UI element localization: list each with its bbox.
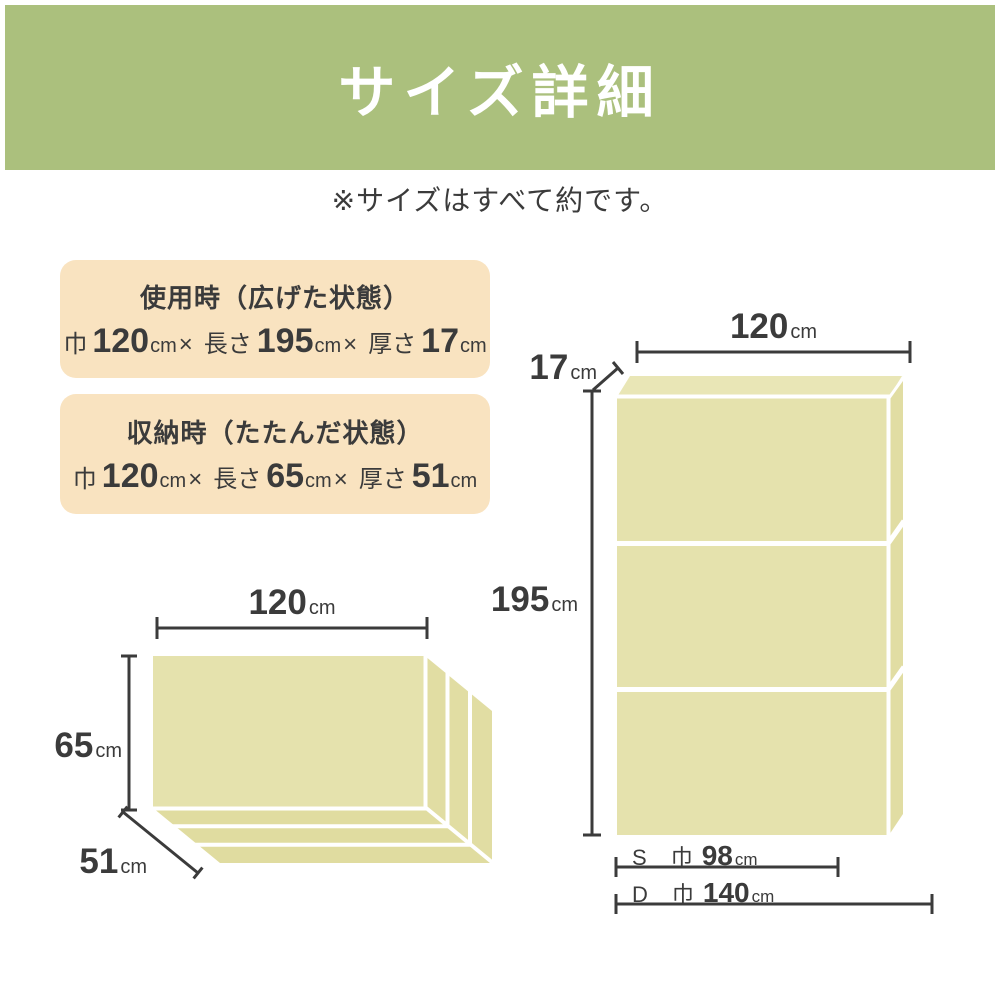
double-size-row: D 巾 140cm (632, 877, 774, 909)
size-width-label: 巾 (671, 840, 693, 872)
folded-height-dim-label: 65cm (30, 726, 122, 766)
folded-depth-dim-label: 51cm (55, 842, 147, 882)
unfolded-top-face (617, 376, 902, 397)
size-code: S (632, 845, 647, 871)
unfolded-thickness-dim-label: 17cm (460, 348, 597, 388)
unfolded-mattress-diagram (583, 341, 932, 914)
unfolded-front-face (617, 397, 888, 835)
dim-value: 17 (529, 348, 568, 388)
single-size-row: S 巾 98cm (632, 840, 758, 872)
dim-value: 120 (248, 583, 306, 623)
dim-unit: cm (790, 321, 817, 344)
folded-front-face (153, 656, 425, 808)
unfolded-length-dim-label: 195cm (460, 580, 578, 620)
dim-value: 120 (730, 307, 788, 347)
dim-unit: cm (309, 597, 336, 620)
size-width-unit: cm (735, 850, 758, 870)
dim-unit: cm (551, 594, 578, 617)
dim-value: 195 (491, 580, 549, 620)
dim-unit: cm (570, 362, 597, 385)
unfolded-width-dim-label: 120cm (637, 307, 910, 347)
size-width-unit: cm (752, 887, 775, 907)
size-width-label: 巾 (672, 877, 694, 909)
size-width-value: 140 (703, 877, 750, 909)
size-detail-infographic: サイズ詳細 ※サイズはすべて約です。 使用時（広げた状態） 巾120cm× 長さ… (0, 0, 1000, 1000)
folded-mattress-diagram (119, 617, 493, 878)
dim-value: 65 (54, 726, 93, 766)
folded-width-dim-label: 120cm (157, 583, 427, 623)
mattress-diagrams (0, 0, 1000, 1000)
dim-unit: cm (120, 856, 147, 879)
size-code: D (632, 882, 648, 908)
size-width-value: 98 (702, 840, 733, 872)
dim-unit: cm (95, 740, 122, 763)
unfolded-side-face (889, 376, 903, 835)
dim-value: 51 (79, 842, 118, 882)
